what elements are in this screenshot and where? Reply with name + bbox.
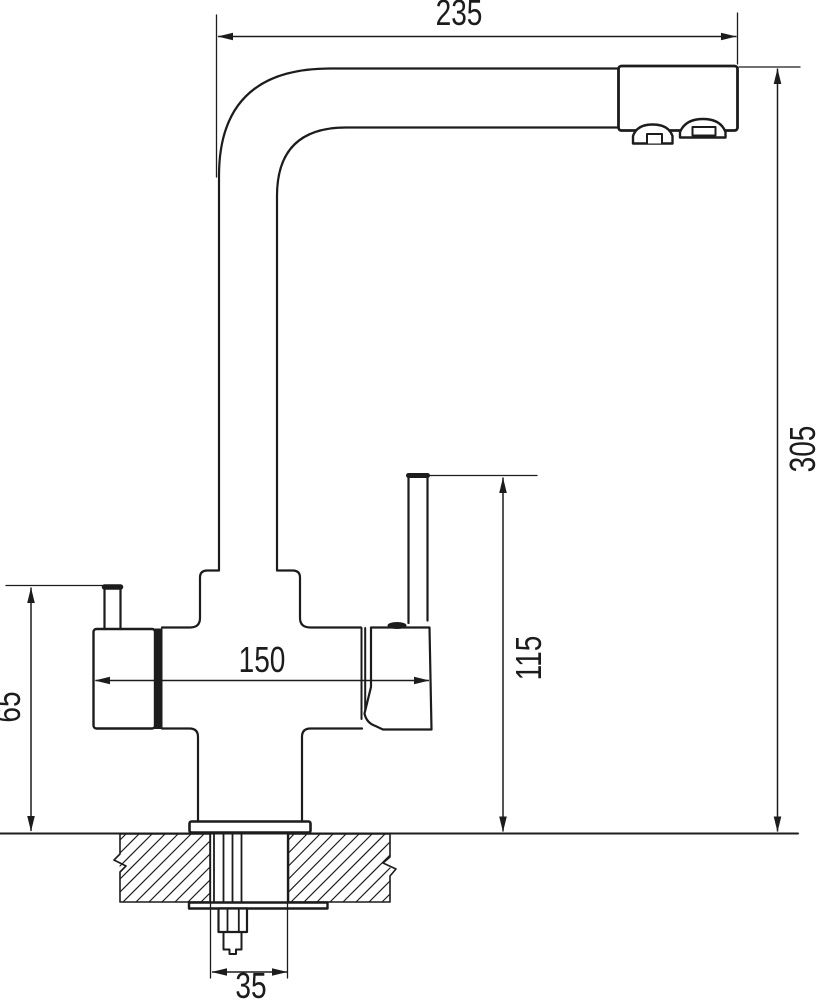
base-plate [190,822,311,833]
dim-label-lever-top-height: 115 [509,636,549,681]
technical-drawing-page: 235 305 150 115 65 35 [0,0,824,1000]
dim-label-body-width: 150 [239,640,286,680]
spout-head [619,66,738,131]
lever-hinge-bump [388,622,407,629]
faucet-drawing-canvas: 235 305 150 115 65 35 [0,0,824,1000]
left-handle-joint [155,629,163,730]
dim-label-mounting-hole-width: 35 [235,966,266,1000]
dim-label-overall-height: 305 [783,426,823,473]
aerator-small-slot [647,134,662,144]
right-lever-grip [365,628,432,730]
mounting-nut [219,909,248,933]
dim-label-spout-reach: 235 [436,0,483,33]
mounting-washer [189,903,328,909]
dim-label-side-handle-height: 65 [0,691,28,722]
